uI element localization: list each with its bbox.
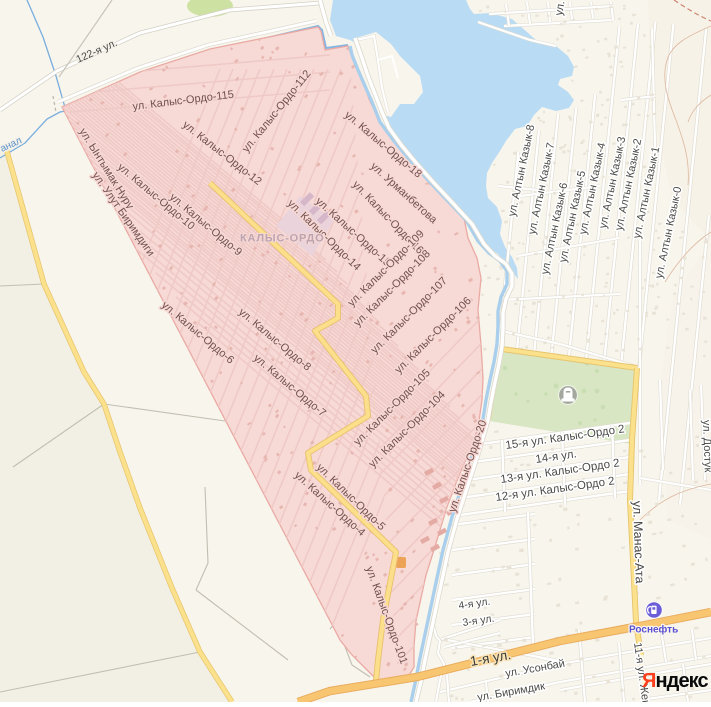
svg-text:КАЛЫС-ОРДО: КАЛЫС-ОРДО [240, 233, 324, 245]
svg-text:ул. Манас-Ата: ул. Манас-Ата [630, 501, 647, 584]
svg-text:Яндекс: Яндекс [642, 670, 709, 692]
svg-text:Роснефть: Роснефть [629, 624, 678, 636]
svg-text:ул. Достук: ул. Достук [700, 420, 711, 473]
svg-text:ул.: ул. [553, 0, 567, 17]
